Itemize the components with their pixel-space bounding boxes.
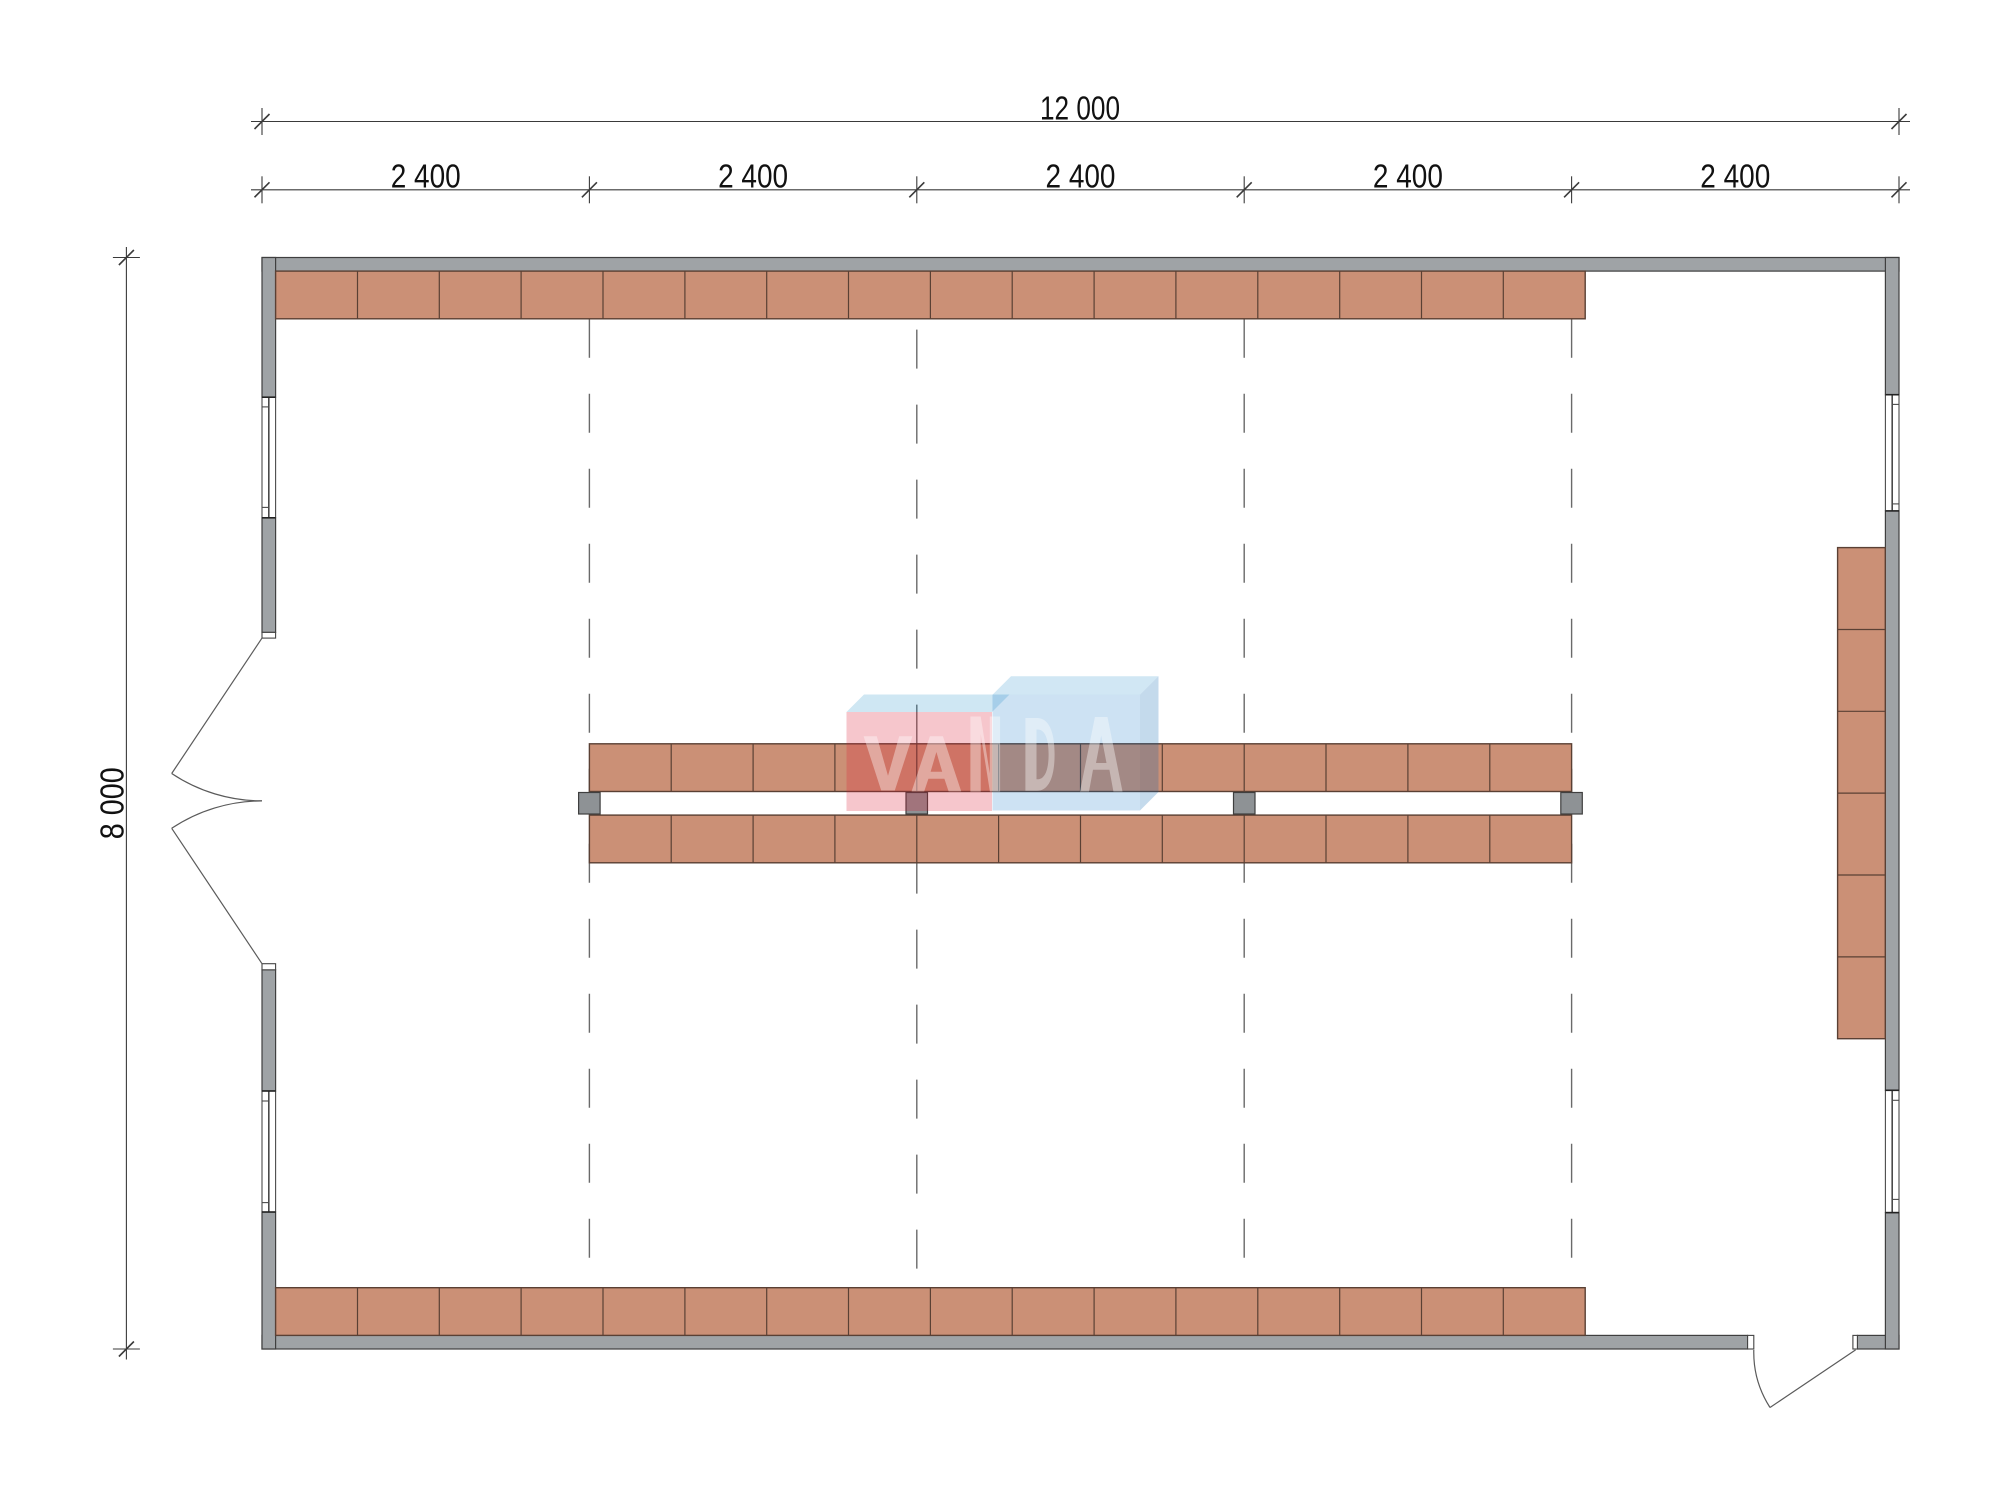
svg-text:2 400: 2 400 xyxy=(1373,157,1443,194)
svg-text:2 400: 2 400 xyxy=(718,157,788,194)
svg-text:2 400: 2 400 xyxy=(1700,157,1770,194)
svg-text:2 400: 2 400 xyxy=(1046,157,1116,194)
svg-text:2 400: 2 400 xyxy=(391,157,461,194)
svg-text:8 000: 8 000 xyxy=(94,767,131,839)
svg-text:12 000: 12 000 xyxy=(1040,89,1120,126)
